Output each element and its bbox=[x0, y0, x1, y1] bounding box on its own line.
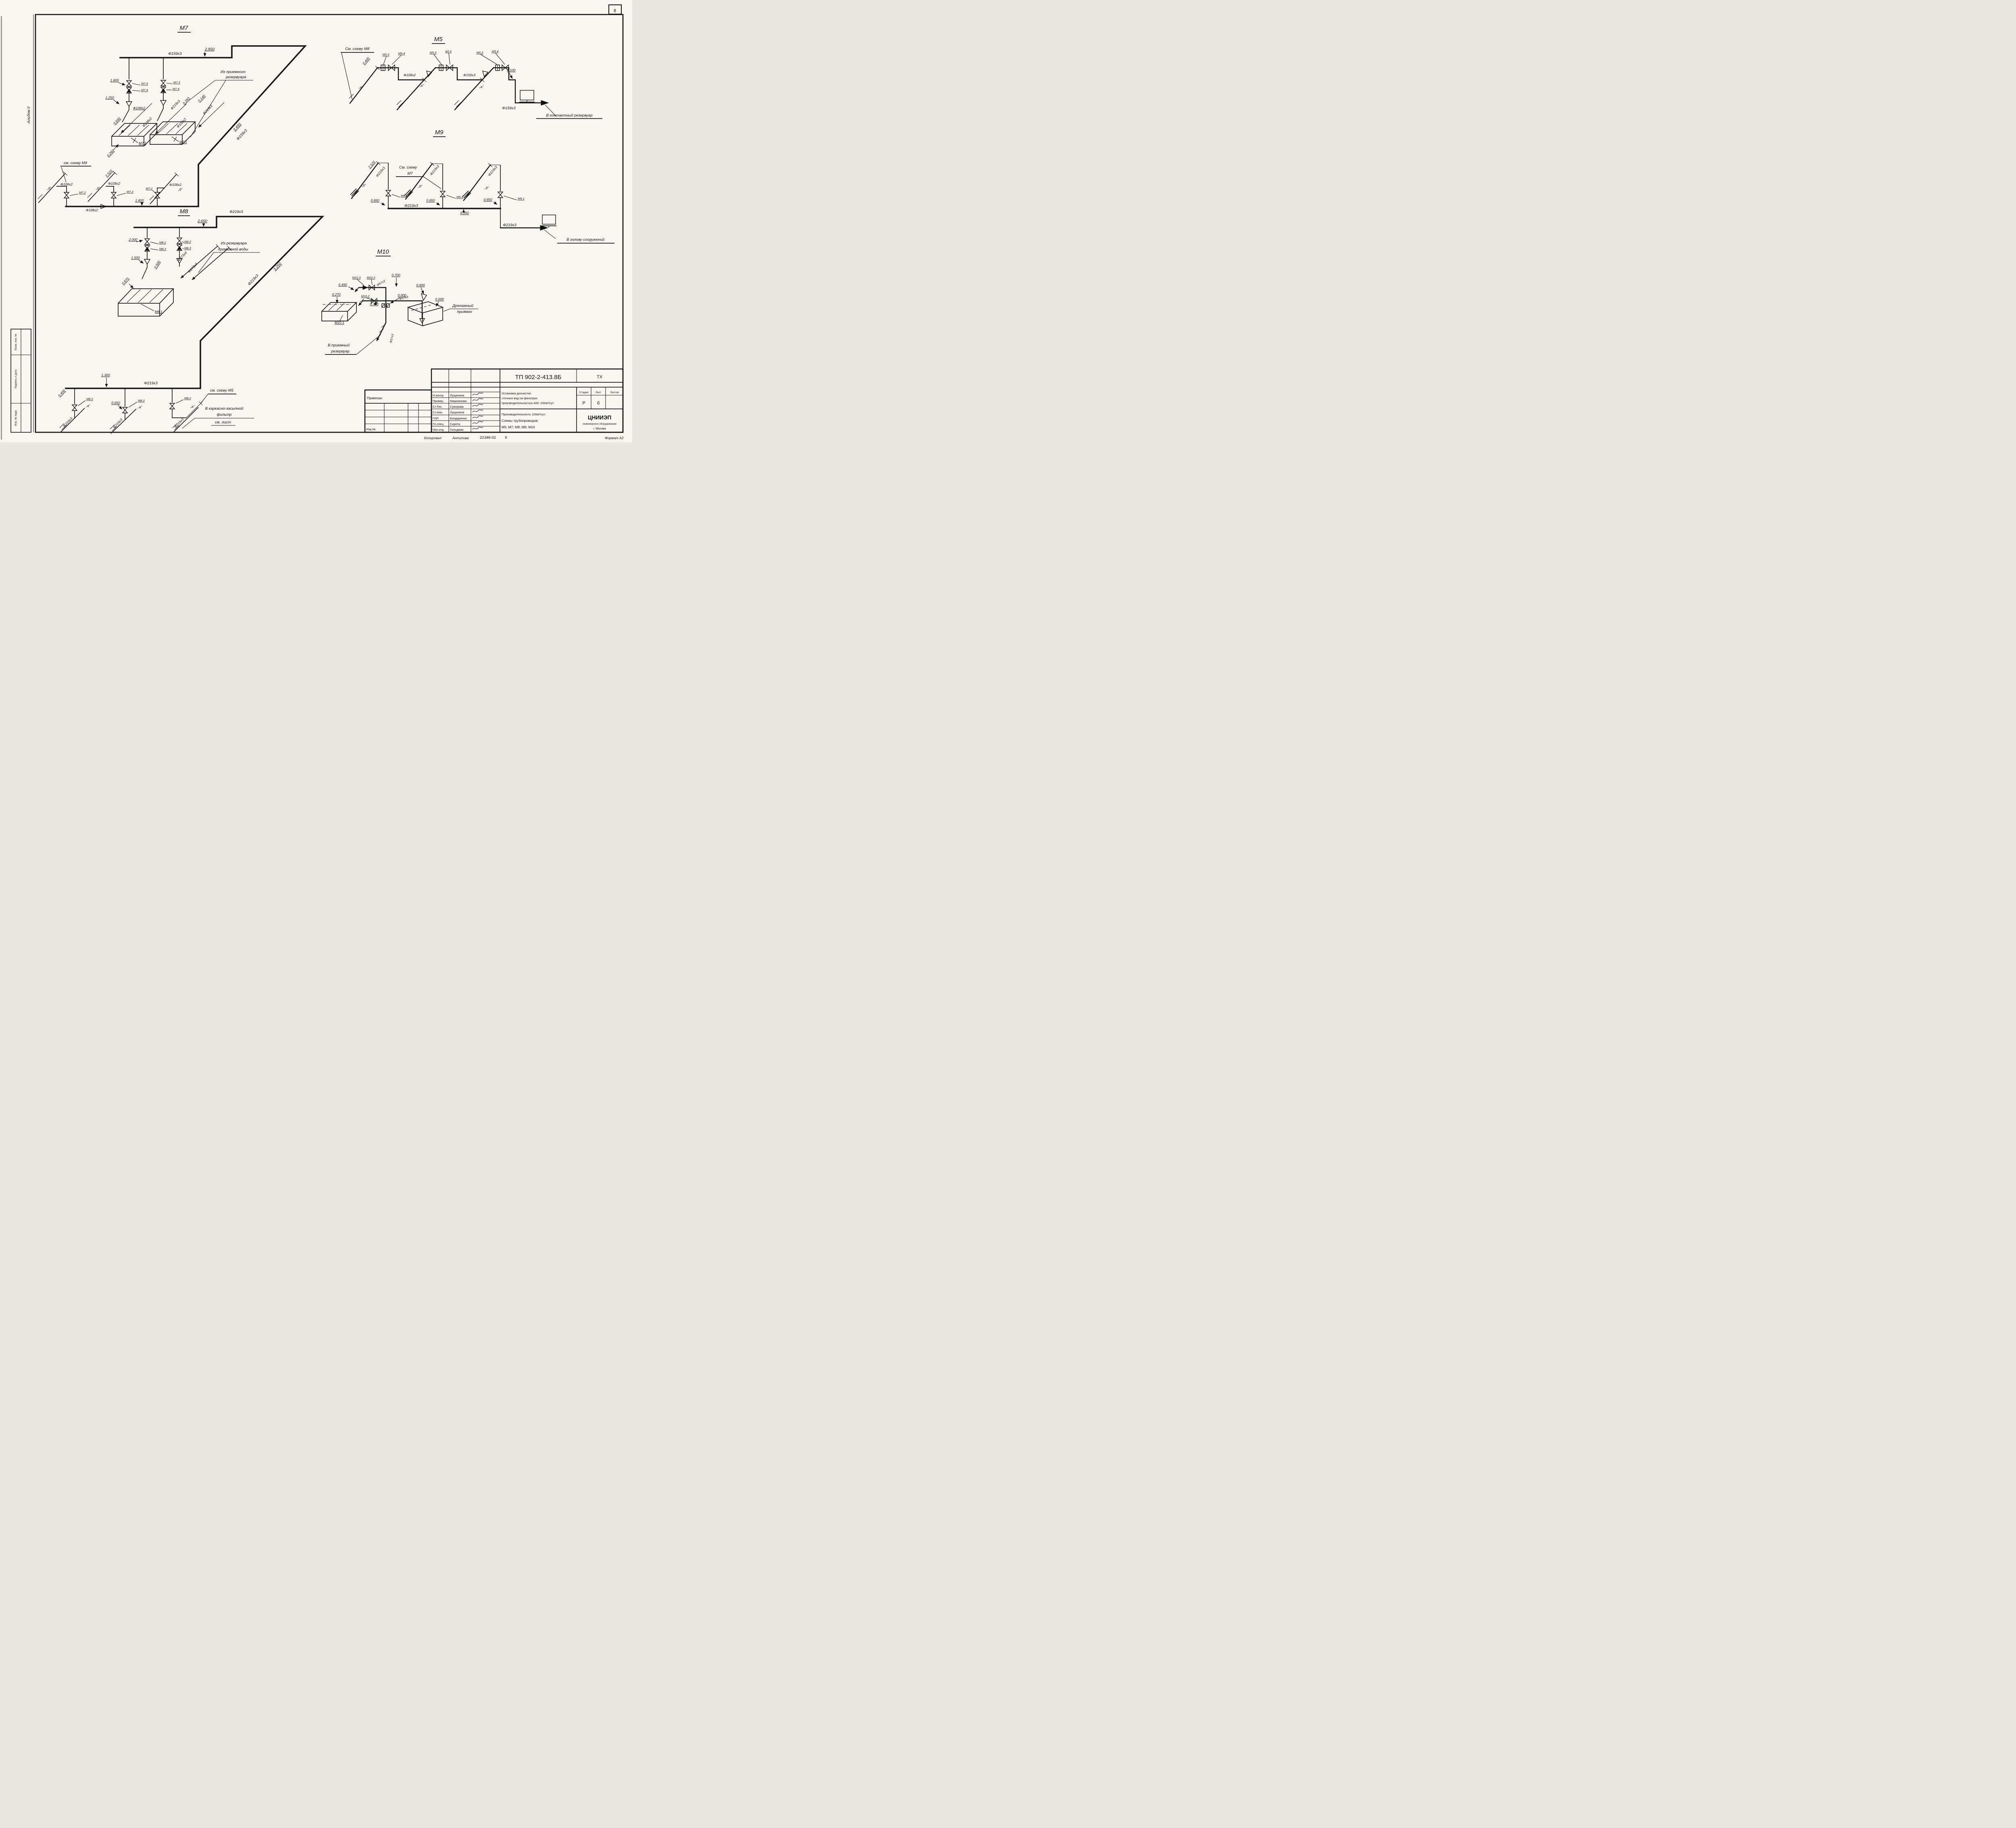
svg-text:Лущихина: Лущихина bbox=[450, 411, 464, 414]
margin-label-podpis: Подпись и дата bbox=[15, 369, 17, 388]
note-label: В приемный bbox=[328, 343, 350, 348]
valve-label: М7.3 bbox=[141, 82, 148, 85]
inv-label: Инв.№ bbox=[366, 427, 376, 431]
content-line: Производительность 100м³/сут. bbox=[502, 413, 546, 416]
dim-label: 1.600 bbox=[110, 78, 119, 82]
equipment-box-icon bbox=[542, 215, 556, 224]
note-label: Дренажный bbox=[452, 304, 474, 308]
note-label: Из приемного bbox=[221, 70, 246, 74]
note-label: Из резервуара bbox=[221, 241, 247, 246]
format-label: Формат А2 bbox=[605, 436, 624, 440]
tank-label: М7.1 bbox=[179, 140, 187, 144]
pipe-label: Ф219х3 bbox=[62, 416, 73, 428]
funnel-icon bbox=[144, 259, 150, 264]
dim-label: 0.150 bbox=[460, 211, 469, 215]
pipe-label: Ф108х2 bbox=[133, 106, 145, 110]
valve-label: М8.2 bbox=[138, 399, 145, 402]
signature-icon bbox=[473, 427, 483, 429]
m7-title: М7 bbox=[180, 25, 188, 31]
dim-label: 1.300 bbox=[101, 373, 110, 377]
svg-text:Лущихина: Лущихина bbox=[450, 394, 464, 397]
dim-label: 3.250 bbox=[273, 261, 283, 271]
project-title: производительностью 400; 100м³/сут. bbox=[502, 401, 554, 405]
svg-text:Гольдман: Гольдман bbox=[450, 428, 464, 431]
note-label: См. схему М8 bbox=[345, 47, 370, 51]
funnel-icon bbox=[483, 71, 488, 77]
dim-label: 0.700 bbox=[392, 273, 400, 277]
dim-label: 2.650 bbox=[197, 219, 207, 223]
m9-title: М9 bbox=[435, 129, 444, 136]
sheet-label: Лист bbox=[596, 391, 601, 394]
drawing-sheet: 8 Альбом II Взам. инв. № Подпись и дата … bbox=[0, 0, 632, 442]
signature-rows: Н.контр.Лущихина Провер.Машнинова Ст.Тех… bbox=[433, 393, 483, 431]
signature-icon bbox=[473, 398, 483, 401]
dim-label: 0.600 bbox=[416, 283, 425, 287]
valve-label: М10.2 bbox=[361, 294, 370, 298]
svg-text:ГИП: ГИП bbox=[433, 417, 439, 420]
left-margin-strip: Взам. инв. № Подпись и дата Инв. № подл. bbox=[11, 329, 31, 432]
title-block: Привязан Инв.№ Н.контр.Лущихина Провер.М… bbox=[365, 369, 624, 440]
stub-label: „а” bbox=[479, 85, 484, 89]
dim-label: 2.850 bbox=[204, 47, 215, 52]
m8-title: М8 bbox=[180, 208, 188, 215]
scheme-m8: М8 Ф219х3 2.650 2.000 М8.2 М8.3 М8.2 М8.… bbox=[57, 208, 323, 434]
stub-label: „а” bbox=[190, 404, 195, 409]
dim-label: 0.870 bbox=[121, 277, 130, 286]
valve-label: М8.2 bbox=[184, 396, 192, 400]
margin-label-vzam: Взам. инв. № bbox=[15, 334, 17, 350]
pipe-label: Ф159х3 bbox=[168, 52, 182, 56]
pipe-label: Ф219х3 bbox=[247, 273, 260, 286]
svg-text:Бондаренко: Бондаренко bbox=[450, 417, 467, 420]
tank-label: М7.1 bbox=[139, 141, 146, 145]
pipe-label: Ф159х3 bbox=[463, 73, 475, 77]
valve-label: М8.2 bbox=[184, 240, 192, 244]
note-label: М7 bbox=[407, 171, 413, 176]
stub-label: „а” bbox=[358, 85, 364, 89]
pipe-label: Ф108х2 bbox=[176, 117, 187, 129]
stub-label: „а” bbox=[137, 405, 143, 409]
gate-valve-icon bbox=[111, 192, 116, 198]
pipe-label: Ф219х3 bbox=[170, 99, 181, 110]
funnel-icon bbox=[420, 319, 425, 323]
signature-icon bbox=[473, 421, 483, 424]
dim-label: 2.520 bbox=[104, 169, 113, 178]
copied-label: Копировал: bbox=[424, 436, 442, 440]
pipe-label: Ф108х2 bbox=[142, 116, 153, 128]
sheet-number: 8 bbox=[614, 8, 616, 13]
pipe-label: Ф273х4 bbox=[187, 262, 198, 273]
dim-label: 3.450 bbox=[232, 122, 242, 132]
project-title: сточных вод на фильтрах bbox=[502, 396, 537, 400]
funnel-icon bbox=[126, 102, 132, 106]
valve-label: М5.3 bbox=[430, 51, 437, 54]
signature-icon bbox=[473, 410, 483, 412]
gate-valve-icon bbox=[64, 192, 69, 198]
stage-value: Р bbox=[582, 401, 585, 406]
pipe-label: Ф219х3 bbox=[375, 166, 386, 178]
valve-label: М7.2 bbox=[79, 191, 86, 194]
m5-title: М5 bbox=[434, 36, 443, 43]
note-label: см. схему М5 bbox=[210, 388, 234, 393]
pipe-label: Ф219х3 bbox=[503, 223, 516, 227]
dim-label: 0.380 bbox=[370, 302, 379, 306]
svg-text:Суворова: Суворова bbox=[450, 405, 464, 409]
valve-label: М5.4 bbox=[492, 50, 499, 53]
stub-label: „а” bbox=[85, 404, 91, 408]
valve-label: М5.4 bbox=[398, 52, 405, 55]
content-line: М5; М7; М8; М9; М10 bbox=[502, 425, 535, 429]
pipe-label: Ф159х3 bbox=[502, 106, 516, 110]
org-name: г. Москва bbox=[593, 427, 606, 430]
valve-label: М8.3 bbox=[159, 247, 167, 251]
note-label: см. схему М9 bbox=[64, 161, 87, 165]
dim-label: 0.270 bbox=[332, 292, 341, 296]
valve-label: М7.2 bbox=[146, 187, 153, 190]
org-name: инженерного оборудования bbox=[583, 422, 616, 425]
footer-line: Копировал: Антипова 21346-01 9 Формат А2 bbox=[424, 436, 624, 440]
valve-label: М10.2 bbox=[367, 276, 376, 279]
dim-label: 0.500 bbox=[153, 260, 161, 270]
pipe-label: Ф108х2 bbox=[86, 208, 98, 212]
valve-label: М7.4 bbox=[141, 88, 148, 92]
dim-label: 0.100 bbox=[507, 68, 516, 72]
stage-label: Стадия bbox=[579, 391, 589, 394]
dim-label: 2.000 bbox=[128, 238, 137, 242]
pipe-label: Ф219х3 bbox=[404, 204, 418, 208]
scheme-m5: М5 См. схему М8 „а” 0.400 М5.3 М5.4 Ф108… bbox=[341, 36, 602, 119]
footer-doc-code: 21346-01 bbox=[479, 436, 496, 440]
check-valve-icon bbox=[363, 286, 367, 290]
gate-valve-icon bbox=[386, 190, 391, 196]
svg-text:Ст.Тех.: Ст.Тех. bbox=[433, 405, 442, 409]
svg-text:Гл.спец.: Гл.спец. bbox=[433, 422, 444, 426]
dim-label: 0.650 bbox=[111, 401, 120, 405]
pipe-label: Ф57х3 bbox=[389, 334, 395, 344]
dim-label: 0.650 bbox=[371, 198, 379, 202]
gate-valve-icon bbox=[498, 192, 503, 198]
tank-m81 bbox=[118, 289, 173, 316]
pipe-label: Ф219х3 bbox=[144, 381, 158, 386]
svg-text:Сирота: Сирота bbox=[450, 422, 460, 426]
dim-label: 0.000 bbox=[398, 293, 406, 297]
dim-label: 1.500 bbox=[131, 256, 140, 260]
signature-icon bbox=[473, 416, 483, 418]
note-label: резервуара bbox=[225, 75, 246, 79]
pipe-label: Ф108х2 bbox=[169, 183, 181, 187]
binding-label: Привязан bbox=[367, 396, 382, 400]
funnel-icon bbox=[421, 294, 427, 300]
svg-text:Машнинова: Машнинова bbox=[450, 399, 467, 403]
pipe-label: Ф108х2 bbox=[108, 181, 120, 186]
note-label: резервуар bbox=[331, 349, 349, 354]
scheme-m7: М7 Ф159х3 2.850 М7.3 М7.4 М7.3 М7.4 1.60… bbox=[38, 25, 305, 212]
svg-text:Н.контр.: Н.контр. bbox=[433, 394, 444, 397]
pipe-label: Ф108х2 bbox=[404, 73, 416, 77]
stub-label: „б” bbox=[484, 186, 489, 190]
m10-title: М10 bbox=[377, 248, 389, 255]
drain-pit bbox=[408, 302, 443, 326]
valve-label: М5.3 bbox=[383, 53, 390, 56]
stub-label: „б” bbox=[178, 188, 183, 192]
note-label: В контактный резервуар bbox=[546, 113, 592, 118]
note-label: См. схему bbox=[399, 165, 417, 170]
doc-number: ТП 902-2-413.8Б bbox=[515, 374, 562, 381]
doc-type: ТХ bbox=[597, 375, 603, 379]
org-name: ЦНИИЭП bbox=[588, 415, 611, 421]
dim-label: 0.400 bbox=[57, 389, 66, 398]
stub-label: „б” bbox=[418, 184, 423, 188]
dim-label: 0.140 bbox=[197, 94, 206, 103]
dim-label: 1.600 bbox=[135, 198, 144, 202]
copied-by: Антипова bbox=[452, 436, 469, 440]
scheme-m10: М10 М10.3 М10.2 0.700 Ф57х3 0.490 М10.2 … bbox=[322, 248, 478, 354]
pipe-label: Ф108х2 bbox=[60, 182, 73, 186]
pipe-label: Ф273х4 bbox=[177, 250, 188, 262]
valve-label: М5.3 bbox=[477, 51, 484, 54]
content-line: Схемы трубопроводов: bbox=[502, 419, 538, 423]
note-label: фильтр bbox=[217, 413, 232, 417]
dim-label: 0.650 bbox=[483, 198, 492, 202]
note-label: приямок bbox=[457, 310, 472, 314]
gate-valve-icon bbox=[440, 191, 445, 197]
signature-icon bbox=[473, 404, 483, 406]
pipe-label: Ф57х3 bbox=[376, 279, 386, 287]
stub-label: „а” bbox=[419, 83, 425, 88]
svg-text:Нач.отд.: Нач.отд. bbox=[433, 428, 444, 431]
gate-valve-icon bbox=[72, 405, 77, 411]
valve-label: м5.4 bbox=[445, 50, 452, 53]
valve-label: М7.4 bbox=[173, 87, 179, 91]
project-title: Установка доочистки bbox=[502, 392, 531, 395]
sheet-value: б bbox=[597, 401, 600, 406]
valve-label: М8.3 bbox=[184, 246, 192, 250]
album-label: Альбом II bbox=[27, 106, 31, 124]
note-label: промывной воды bbox=[218, 247, 248, 252]
margin-label-inv: Инв. № подл. bbox=[15, 410, 17, 426]
dim-label: 0.650 bbox=[112, 117, 121, 125]
gate-valve-icon bbox=[170, 403, 175, 409]
tank-m101 bbox=[322, 302, 356, 321]
stub-label: „б” bbox=[47, 186, 52, 190]
funnel-icon bbox=[160, 100, 166, 105]
pipe-label: Ф219х3 bbox=[229, 210, 243, 214]
dim-label: 0.400 bbox=[362, 56, 371, 66]
valve-label: М10.3 bbox=[352, 276, 361, 279]
dim-label: 0.650 bbox=[426, 198, 435, 202]
svg-text:Провер.: Провер. bbox=[433, 399, 444, 403]
flow-arrow-icon bbox=[541, 100, 548, 105]
dim-label: 1.250 bbox=[105, 96, 114, 100]
equipment-box-icon bbox=[520, 90, 534, 100]
pipe-label: Ф159х3 bbox=[236, 128, 248, 141]
valve-label: М8.2 bbox=[159, 241, 167, 244]
note-label: см. лист bbox=[215, 420, 231, 425]
valve-label: М8.2 bbox=[86, 397, 94, 401]
gate-valve-icon bbox=[123, 407, 127, 413]
stub-label: „б” bbox=[96, 186, 101, 190]
valve-label: М9.1 bbox=[456, 195, 463, 199]
dim-label: 0.260 bbox=[182, 96, 191, 105]
note-label: В голову сооружений bbox=[566, 238, 605, 242]
valve-label: М9.1 bbox=[518, 197, 525, 200]
note-label: В каркасно-засыпной bbox=[205, 406, 244, 411]
dim-label: 0.000 bbox=[435, 297, 444, 301]
tank-label: М8.1 bbox=[155, 310, 162, 314]
sheets-label: Листов bbox=[610, 391, 619, 394]
scheme-m9: М9 2.520 Ф219х3 „б” М9.1 0.650 См. схему… bbox=[350, 129, 614, 243]
dim-label: 0.490 bbox=[338, 283, 347, 287]
valve-label: М7.2 bbox=[127, 190, 134, 194]
svg-text:Ст.инж.: Ст.инж. bbox=[433, 411, 443, 414]
footer-sheet-no: 9 bbox=[505, 436, 507, 440]
valve-label: М7.3 bbox=[173, 81, 181, 84]
stub-label: „б” bbox=[361, 183, 367, 188]
signature-icon bbox=[473, 393, 483, 395]
